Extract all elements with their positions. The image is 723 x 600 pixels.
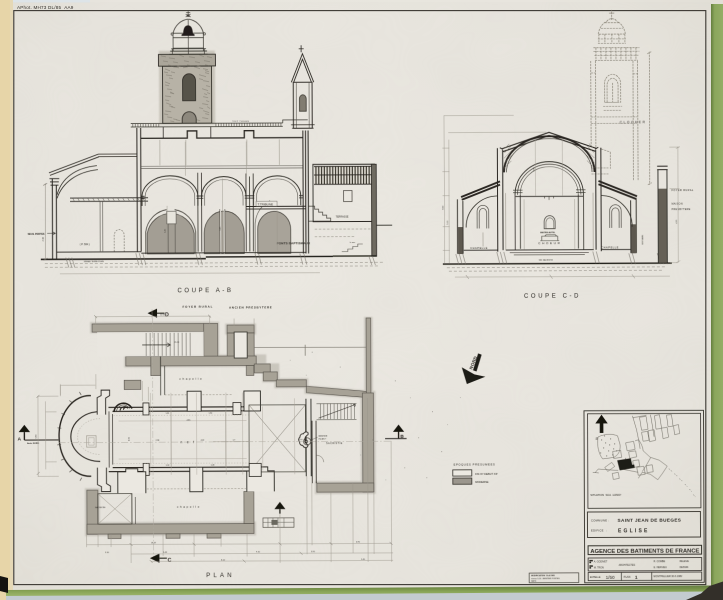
svg-text:12.65: 12.65	[160, 314, 166, 316]
svg-text:R. COMBE: R. COMBE	[654, 561, 666, 563]
svg-text:FIN XIº DEBUT XIIº: FIN XIº DEBUT XIIº	[475, 472, 498, 476]
svg-text:chapelle: chapelle	[179, 376, 203, 380]
svg-text:niveau 3-16 . BENITIER PORTE: niveau 3-16 . BENITIER PORTES	[531, 578, 560, 580]
svg-text:ECHELLE: ECHELLE	[590, 577, 601, 579]
svg-text:AGENCE DES BATIMENTS DE FRANCE: AGENCE DES BATIMENTS DE FRANCE	[590, 548, 699, 554]
svg-text:1.7: 1.7	[233, 440, 236, 442]
svg-text:APhot. MH73 DL/85 AA9: APhot. MH73 DL/85 AA9	[17, 5, 74, 10]
svg-text:M. TRON: M. TRON	[594, 567, 604, 569]
svg-text:nef: nef	[181, 440, 199, 444]
svg-text:CLOCHER: CLOCHER	[620, 120, 647, 124]
svg-text:MODERNE: MODERNE	[475, 480, 489, 484]
svg-text:1: 1	[635, 575, 638, 580]
svg-text:2.98: 2.98	[156, 440, 160, 442]
svg-text:MONTPELLIER 30.6.1982: MONTPELLIER 30.6.1982	[654, 575, 683, 578]
svg-text:T.TRIBUNE: T.TRIBUNE	[258, 202, 274, 206]
svg-text:E. HERVIEU: E. HERVIEU	[654, 567, 667, 569]
svg-text:1/50: 1/50	[606, 575, 615, 580]
svg-text:PILIER ?: PILIER ?	[319, 438, 327, 440]
svg-text:FOYER RURAL: FOYER RURAL	[183, 304, 214, 308]
svg-text:EDIFICE :: EDIFICE :	[591, 529, 607, 533]
svg-text:4.02: 4.02	[201, 440, 205, 442]
svg-text:SEUIL PORTES: SEUIL PORTES	[28, 234, 45, 236]
svg-text:MAITRE-AUTEL: MAITRE-AUTEL	[540, 231, 556, 234]
svg-text:TOIT TUILES: TOIT TUILES	[232, 121, 249, 123]
svg-text:SITUATION SCH. 1/2500º: SITUATION SCH. 1/2500º	[590, 493, 621, 497]
svg-text:Amb. NORD: Amb. NORD	[27, 442, 39, 445]
svg-text:18.47: 18.47	[151, 542, 157, 544]
svg-text:COUPE A-B: COUPE A-B	[177, 288, 233, 294]
svg-text:MODIFICATION 10-4-1985: MODIFICATION 10-4-1985	[531, 574, 554, 577]
svg-text:TERRASSE: TERRASSE	[336, 215, 349, 218]
svg-text:A. GODIVET: A. GODIVET	[594, 561, 608, 564]
svg-text:EGLISE: EGLISE	[618, 528, 650, 534]
svg-text:NIV. SACRISTIE: NIV. SACRISTIE	[539, 259, 554, 262]
svg-text:CHOEUR: CHOEUR	[538, 241, 561, 245]
svg-text:15.20: 15.20	[174, 342, 180, 344]
svg-text:B: B	[400, 434, 404, 440]
svg-text:EPOQUES PRESUMEES: EPOQUES PRESUMEES	[454, 463, 496, 467]
svg-text:BENITIER: BENITIER	[319, 436, 328, 438]
svg-text:SAINT JEAN DE BUEGES: SAINT JEAN DE BUEGES	[617, 518, 681, 523]
svg-text:1.28: 1.28	[211, 465, 215, 467]
svg-text:RELEVE: RELEVE	[680, 561, 690, 563]
svg-text:h. mur: h. mur	[350, 241, 356, 244]
svg-text:PLAN: PLAN	[624, 575, 631, 579]
svg-text:NEFS: NEFS	[531, 581, 537, 583]
svg-text:PRESBYTERE: PRESBYTERE	[672, 208, 691, 211]
svg-text:NIVEAU TERRE PLEIN: NIVEAU TERRE PLEIN	[84, 260, 105, 263]
svg-text:SACRISTIE: SACRISTIE	[95, 506, 106, 509]
svg-text:MAISON: MAISON	[672, 203, 683, 206]
svg-text:CHAPELLE: CHAPELLE	[470, 246, 488, 250]
svg-text:COUPE C-D: COUPE C-D	[524, 294, 581, 300]
svg-text:D: D	[165, 312, 169, 318]
svg-text:1.32: 1.32	[166, 465, 170, 467]
svg-text:chapelle: chapelle	[177, 504, 201, 508]
svg-text:VESTIAIRE: VESTIAIRE	[641, 234, 644, 245]
svg-text:DESSIN: DESSIN	[680, 567, 689, 569]
svg-text:CHAPELLE: CHAPELLE	[601, 245, 619, 249]
svg-text:FOYER RURAL: FOYER RURAL	[672, 189, 694, 192]
svg-text:SACRISTIE: SACRISTIE	[326, 442, 343, 445]
svg-text:ANCIEN PRESBYTERE: ANCIEN PRESBYTERE	[229, 305, 272, 309]
svg-text:COMMUNE :: COMMUNE :	[591, 518, 609, 522]
svg-text:1.30: 1.30	[208, 413, 212, 415]
svg-text:ARCHITECTES: ARCHITECTES	[619, 564, 636, 567]
svg-text:C: C	[168, 558, 172, 564]
svg-text:PLAN: PLAN	[206, 573, 235, 579]
svg-text:A: A	[18, 436, 22, 442]
svg-text:1.35: 1.35	[165, 413, 169, 415]
svg-text:( P. 584 ): ( P. 584 )	[80, 243, 90, 246]
